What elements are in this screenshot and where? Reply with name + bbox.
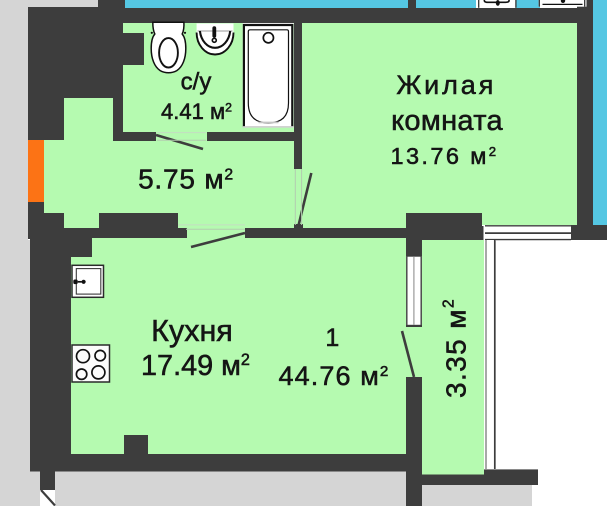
svg-text:3.35 м2: 3.35 м2 bbox=[441, 298, 472, 398]
svg-text:Жилая: Жилая bbox=[396, 70, 496, 100]
svg-text:Кухня: Кухня bbox=[151, 314, 233, 348]
svg-text:44.76 м2: 44.76 м2 bbox=[279, 361, 390, 391]
svg-text:5.75 м2: 5.75 м2 bbox=[138, 164, 234, 195]
svg-text:с/у: с/у bbox=[181, 69, 212, 96]
svg-text:13.76 м2: 13.76 м2 bbox=[390, 143, 498, 169]
svg-text:4.41 м2: 4.41 м2 bbox=[161, 99, 232, 124]
svg-text:17.49 м2: 17.49 м2 bbox=[141, 350, 250, 382]
svg-text:1: 1 bbox=[325, 324, 339, 352]
svg-text:комната: комната bbox=[391, 105, 503, 137]
